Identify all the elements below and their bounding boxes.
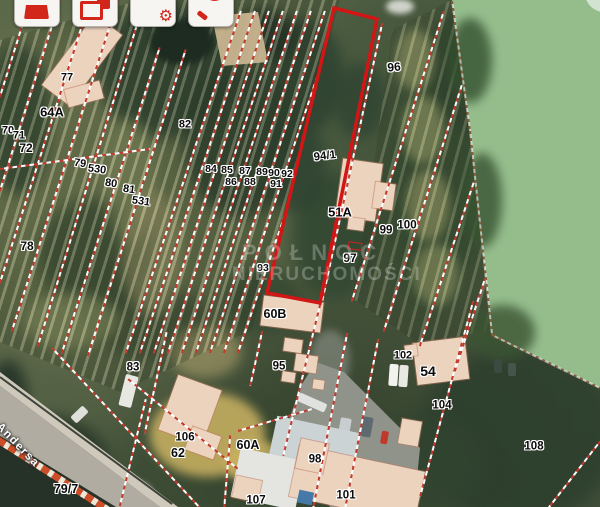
search-button[interactable]: [188, 0, 234, 27]
menu-button[interactable]: [14, 0, 60, 27]
map-viewer-window: 7764A70717279530808153178828485878990928…: [0, 0, 600, 507]
copy-icon-front: [80, 1, 103, 20]
menu-icon: [24, 5, 49, 19]
map-toolbar: ⚙ ⚙: [14, 0, 234, 27]
copy-button[interactable]: [72, 0, 118, 27]
search-icon-handle: [197, 10, 208, 20]
search-icon: [204, 0, 225, 1]
settings-gear-small-icon: ⚙: [159, 6, 173, 26]
settings-button[interactable]: ⚙ ⚙: [130, 0, 176, 27]
map-canvas[interactable]: [0, 0, 600, 507]
